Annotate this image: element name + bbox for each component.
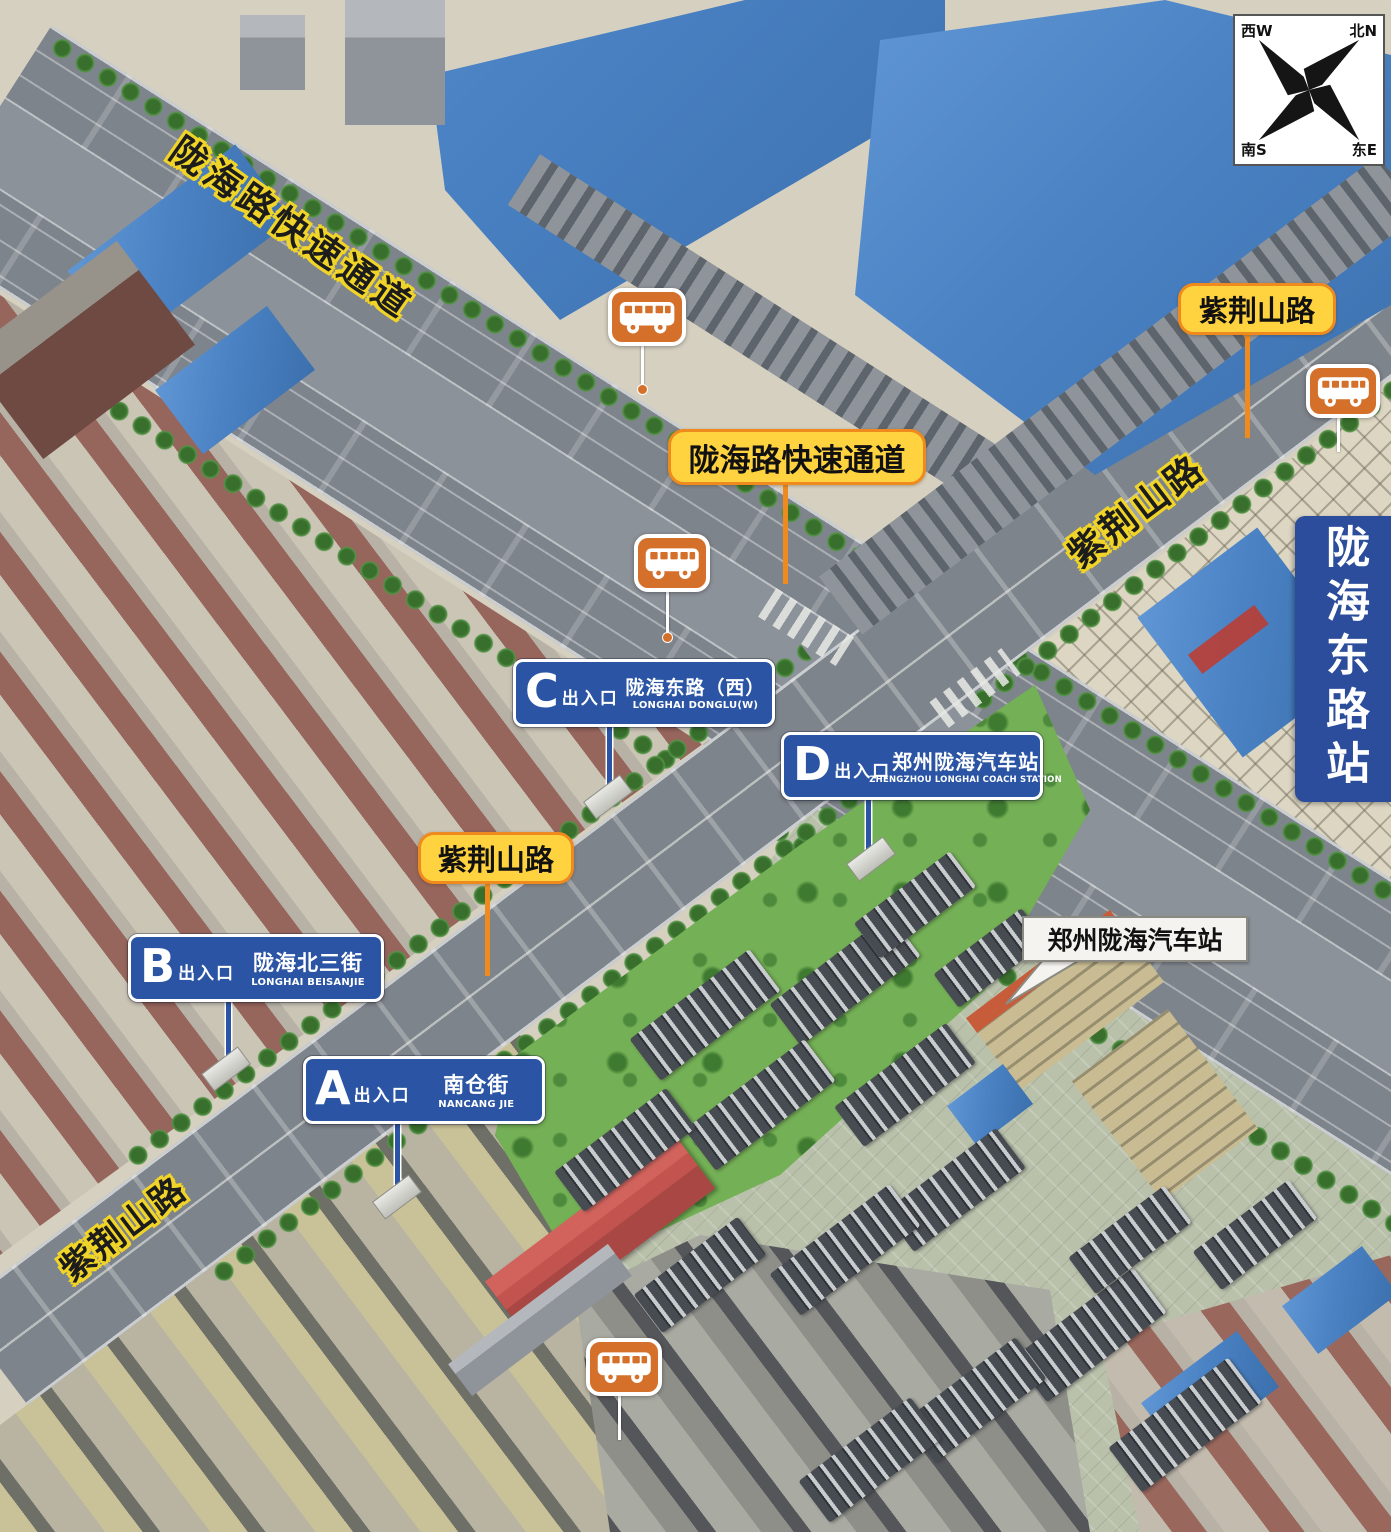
compass-pinwheel xyxy=(1243,24,1375,156)
exit-street-name: 郑州陇海汽车站 xyxy=(892,746,1039,775)
exit-letter-block: B 出入口 xyxy=(140,945,235,989)
building-sign xyxy=(1188,605,1269,674)
bus-stop-icon xyxy=(1306,364,1380,418)
exit-letter: B xyxy=(140,945,175,989)
exit-street-roman: NANCANG JIE xyxy=(438,1099,514,1110)
callout-expressway: 陇海路快速通道 xyxy=(668,429,926,485)
exit-letter: A xyxy=(315,1067,351,1111)
exit-suffix: 出入口 xyxy=(354,1081,411,1106)
exit-sign-d: D 出入口 郑州陇海汽车站 ZHENGZHOU LONGHAI COACH ST… xyxy=(781,732,1043,800)
exit-street-roman: LONGHAI DONGLU(W) xyxy=(633,700,759,711)
exit-letter: C xyxy=(525,670,559,714)
exit-letter: D xyxy=(793,743,831,787)
exit-name-block: 陇海北三街 LONGHAI BEISANJIE xyxy=(244,947,372,988)
exit-name-block: 陇海东路（西） LONGHAI DONGLU(W) xyxy=(628,673,763,711)
callout-leader-line xyxy=(485,880,490,976)
exit-street-name: 陇海北三街 xyxy=(253,947,363,977)
exit-street-roman: ZHENGZHOU LONGHAI COACH STATION xyxy=(869,775,1062,785)
exit-street-roman: LONGHAI BEISANJIE xyxy=(251,977,365,988)
callout-zijingshan-w: 紫荆山路 xyxy=(418,832,574,884)
exit-street-name: 陇海东路（西） xyxy=(625,673,765,700)
compass-rose-icon: 西W 北N 南S 东E xyxy=(1233,14,1385,166)
exit-suffix: 出入口 xyxy=(562,684,619,709)
isometric-station-area-map: 陇海路快速通道 紫荆山路 紫荆山路 陇海路快速通道 紫荆山路 紫荆山路 郑州陇海… xyxy=(0,0,1391,1532)
coach-station-label: 郑州陇海汽车站 xyxy=(1022,916,1248,962)
exit-letter-block: C 出入口 xyxy=(525,670,619,714)
exit-sign-a: A 出入口 南仓街 NANCANG JIE xyxy=(303,1056,545,1124)
bus-stop-dot xyxy=(662,632,673,643)
compass-north-label: 北N xyxy=(1349,20,1377,41)
compass-south-label: 南S xyxy=(1241,139,1267,160)
compass-west-label: 西W xyxy=(1241,20,1273,41)
callout-zijingshan-ne: 紫荆山路 xyxy=(1178,283,1336,335)
callout-leader-line xyxy=(1245,330,1250,438)
bus-stop-icon xyxy=(634,534,710,592)
exit-letter-block: A 出入口 xyxy=(315,1067,411,1111)
exit-name-block: 南仓街 NANCANG JIE xyxy=(420,1069,533,1110)
exit-sign-b: B 出入口 陇海北三街 LONGHAI BEISANJIE xyxy=(128,934,384,1002)
gray-building xyxy=(345,0,445,125)
exit-name-block: 郑州陇海汽车站 ZHENGZHOU LONGHAI COACH STATION xyxy=(900,746,1031,785)
exit-street-name: 南仓街 xyxy=(443,1069,509,1099)
bus-stop-icon xyxy=(608,288,686,346)
callout-leader-line xyxy=(783,482,788,584)
station-name-banner: 陇海东路站 xyxy=(1295,516,1391,802)
exit-sign-c: C 出入口 陇海东路（西） LONGHAI DONGLU(W) xyxy=(513,659,775,727)
bus-stop-icon xyxy=(586,1338,662,1396)
gray-building xyxy=(240,15,305,90)
compass-east-label: 东E xyxy=(1352,139,1377,160)
exit-suffix: 出入口 xyxy=(178,959,235,984)
bus-stop-dot xyxy=(637,384,648,395)
